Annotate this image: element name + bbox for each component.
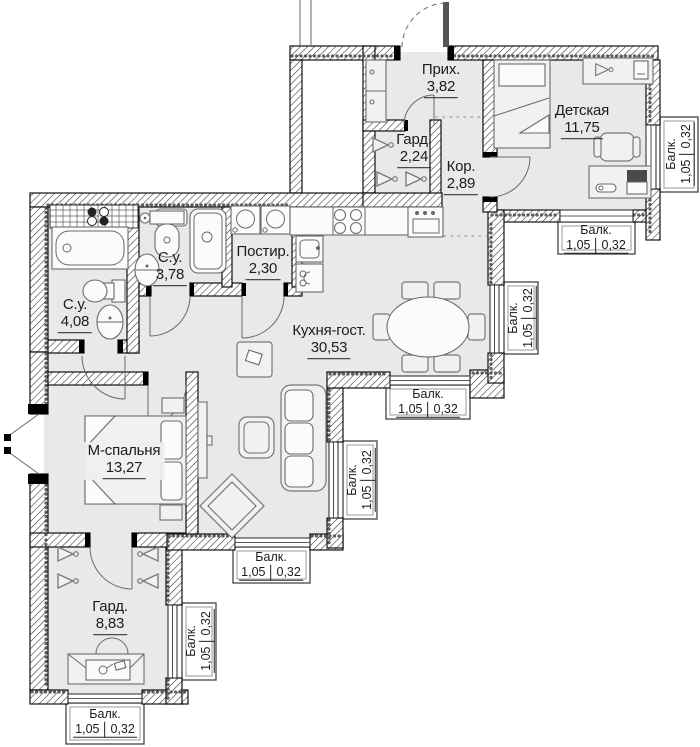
room-label-corridor: Кор. 2,89 [444,159,478,195]
balcony-label: Балк. 1,050,32 [345,448,376,512]
room-area: 11,75 [561,120,602,139]
room-label-master-bedroom: М-спальня 13,27 [84,442,165,480]
room-name: Прих. [422,62,460,79]
room-label-bathroom-small: С.у. 3,78 [153,250,187,286]
window [560,210,633,222]
balcony-label: Балк. 1,050,32 [239,550,303,581]
side-table-icon [237,342,272,377]
kids-wardrobe-icon [583,58,653,84]
room-area: 30,53 [308,340,351,359]
balcony-name: Балк. [564,223,628,238]
french-door [4,414,39,474]
sofa-icon [281,385,326,491]
balcony-name: Балк. [73,707,137,722]
balcony-depth: 0,32 [360,448,376,480]
room-area: 4,08 [58,314,92,333]
balcony-width: 1,05 [360,481,376,512]
floor-plan: Прих. 3,82 Детская 11,75 Гард. 2,24 Кор.… [0,0,700,747]
room-area: 2,89 [444,176,478,195]
window [390,376,470,385]
balcony-label: Балк. 1,050,32 [184,609,215,673]
balcony-width: 1,05 [396,402,427,418]
window [490,285,499,353]
sink-icon [97,305,123,339]
balcony-label: Балк. 1,050,32 [506,286,537,350]
dishwasher-icon [296,264,323,292]
room-label-wardrobe-big: Гард. 8,83 [92,599,128,635]
room-label-hallway: Прих. 3,82 [422,62,460,98]
shower-icon [190,209,226,273]
room-name: М-спальня [88,443,161,460]
balcony-name: Балк. [396,387,460,402]
oven-icon [408,207,443,237]
room-name: Гард. [396,132,432,149]
room-area: 13,27 [103,460,146,479]
balcony-depth: 0,32 [428,402,460,418]
window [329,442,338,518]
room-label-wardrobe-small: Гард. 2,24 [396,132,432,168]
balcony-depth: 0,32 [199,609,215,641]
window [235,538,310,547]
balcony-label: Балк. 1,050,32 [564,223,628,254]
room-name: Кор. [444,159,478,176]
room-name: Постир. [237,244,290,261]
washer-icon [261,206,290,234]
room-label-bathroom-big: С.у. 4,08 [58,297,92,333]
balcony-name: Балк. [345,448,360,512]
balcony-name: Балк. [239,550,303,565]
room-label-laundry: Постир. 2,30 [237,244,290,280]
balcony-name: Балк. [664,122,679,186]
nightstand-icon [160,505,182,520]
balcony-label: Балк. 1,050,32 [396,387,460,418]
vent-shaft-icon [50,205,138,228]
washer-icon [231,206,260,234]
kitchen-sink-icon [296,236,323,262]
kids-bed-icon [494,60,550,148]
room-label-kitchen-living: Кухня-гост. 30,53 [292,323,365,359]
balcony-depth: 0,32 [679,122,695,154]
armchair-icon [239,417,274,458]
balcony-width: 1,05 [239,565,270,581]
window [68,694,142,703]
balcony-depth: 0,32 [521,286,537,318]
room-area: 2,30 [246,261,280,280]
room-name: С.у. [153,250,187,267]
window [168,605,177,678]
balcony-width: 1,05 [679,155,695,186]
bathtub-icon [52,227,128,269]
room-name: Детская [555,103,609,120]
room-name: Гард. [92,599,128,616]
balcony-width: 1,05 [521,319,537,350]
balcony-name: Балк. [506,286,521,350]
balcony-label: Балк. 1,050,32 [664,122,695,186]
balcony-depth: 0,32 [105,722,137,738]
room-area: 3,82 [424,79,458,98]
balcony-width: 1,05 [199,642,215,673]
kids-desk-icon [589,166,651,198]
balcony-label: Балк. 1,050,32 [73,707,137,738]
room-area: 3,78 [153,267,187,286]
entrance-door [402,2,449,47]
balcony-width: 1,05 [564,238,595,254]
room-area: 2,24 [397,149,431,168]
balcony-depth: 0,32 [596,238,628,254]
room-name: Кухня-гост. [292,323,365,340]
nightstand-icon [162,398,184,413]
entry-cabinet-icon [366,60,386,122]
room-label-kids-room: Детская 11,75 [555,103,609,139]
balcony-name: Балк. [184,609,199,673]
balcony-width: 1,05 [73,722,104,738]
balcony-depth: 0,32 [271,565,303,581]
room-name: С.у. [58,297,92,314]
room-area: 8,83 [93,616,127,635]
